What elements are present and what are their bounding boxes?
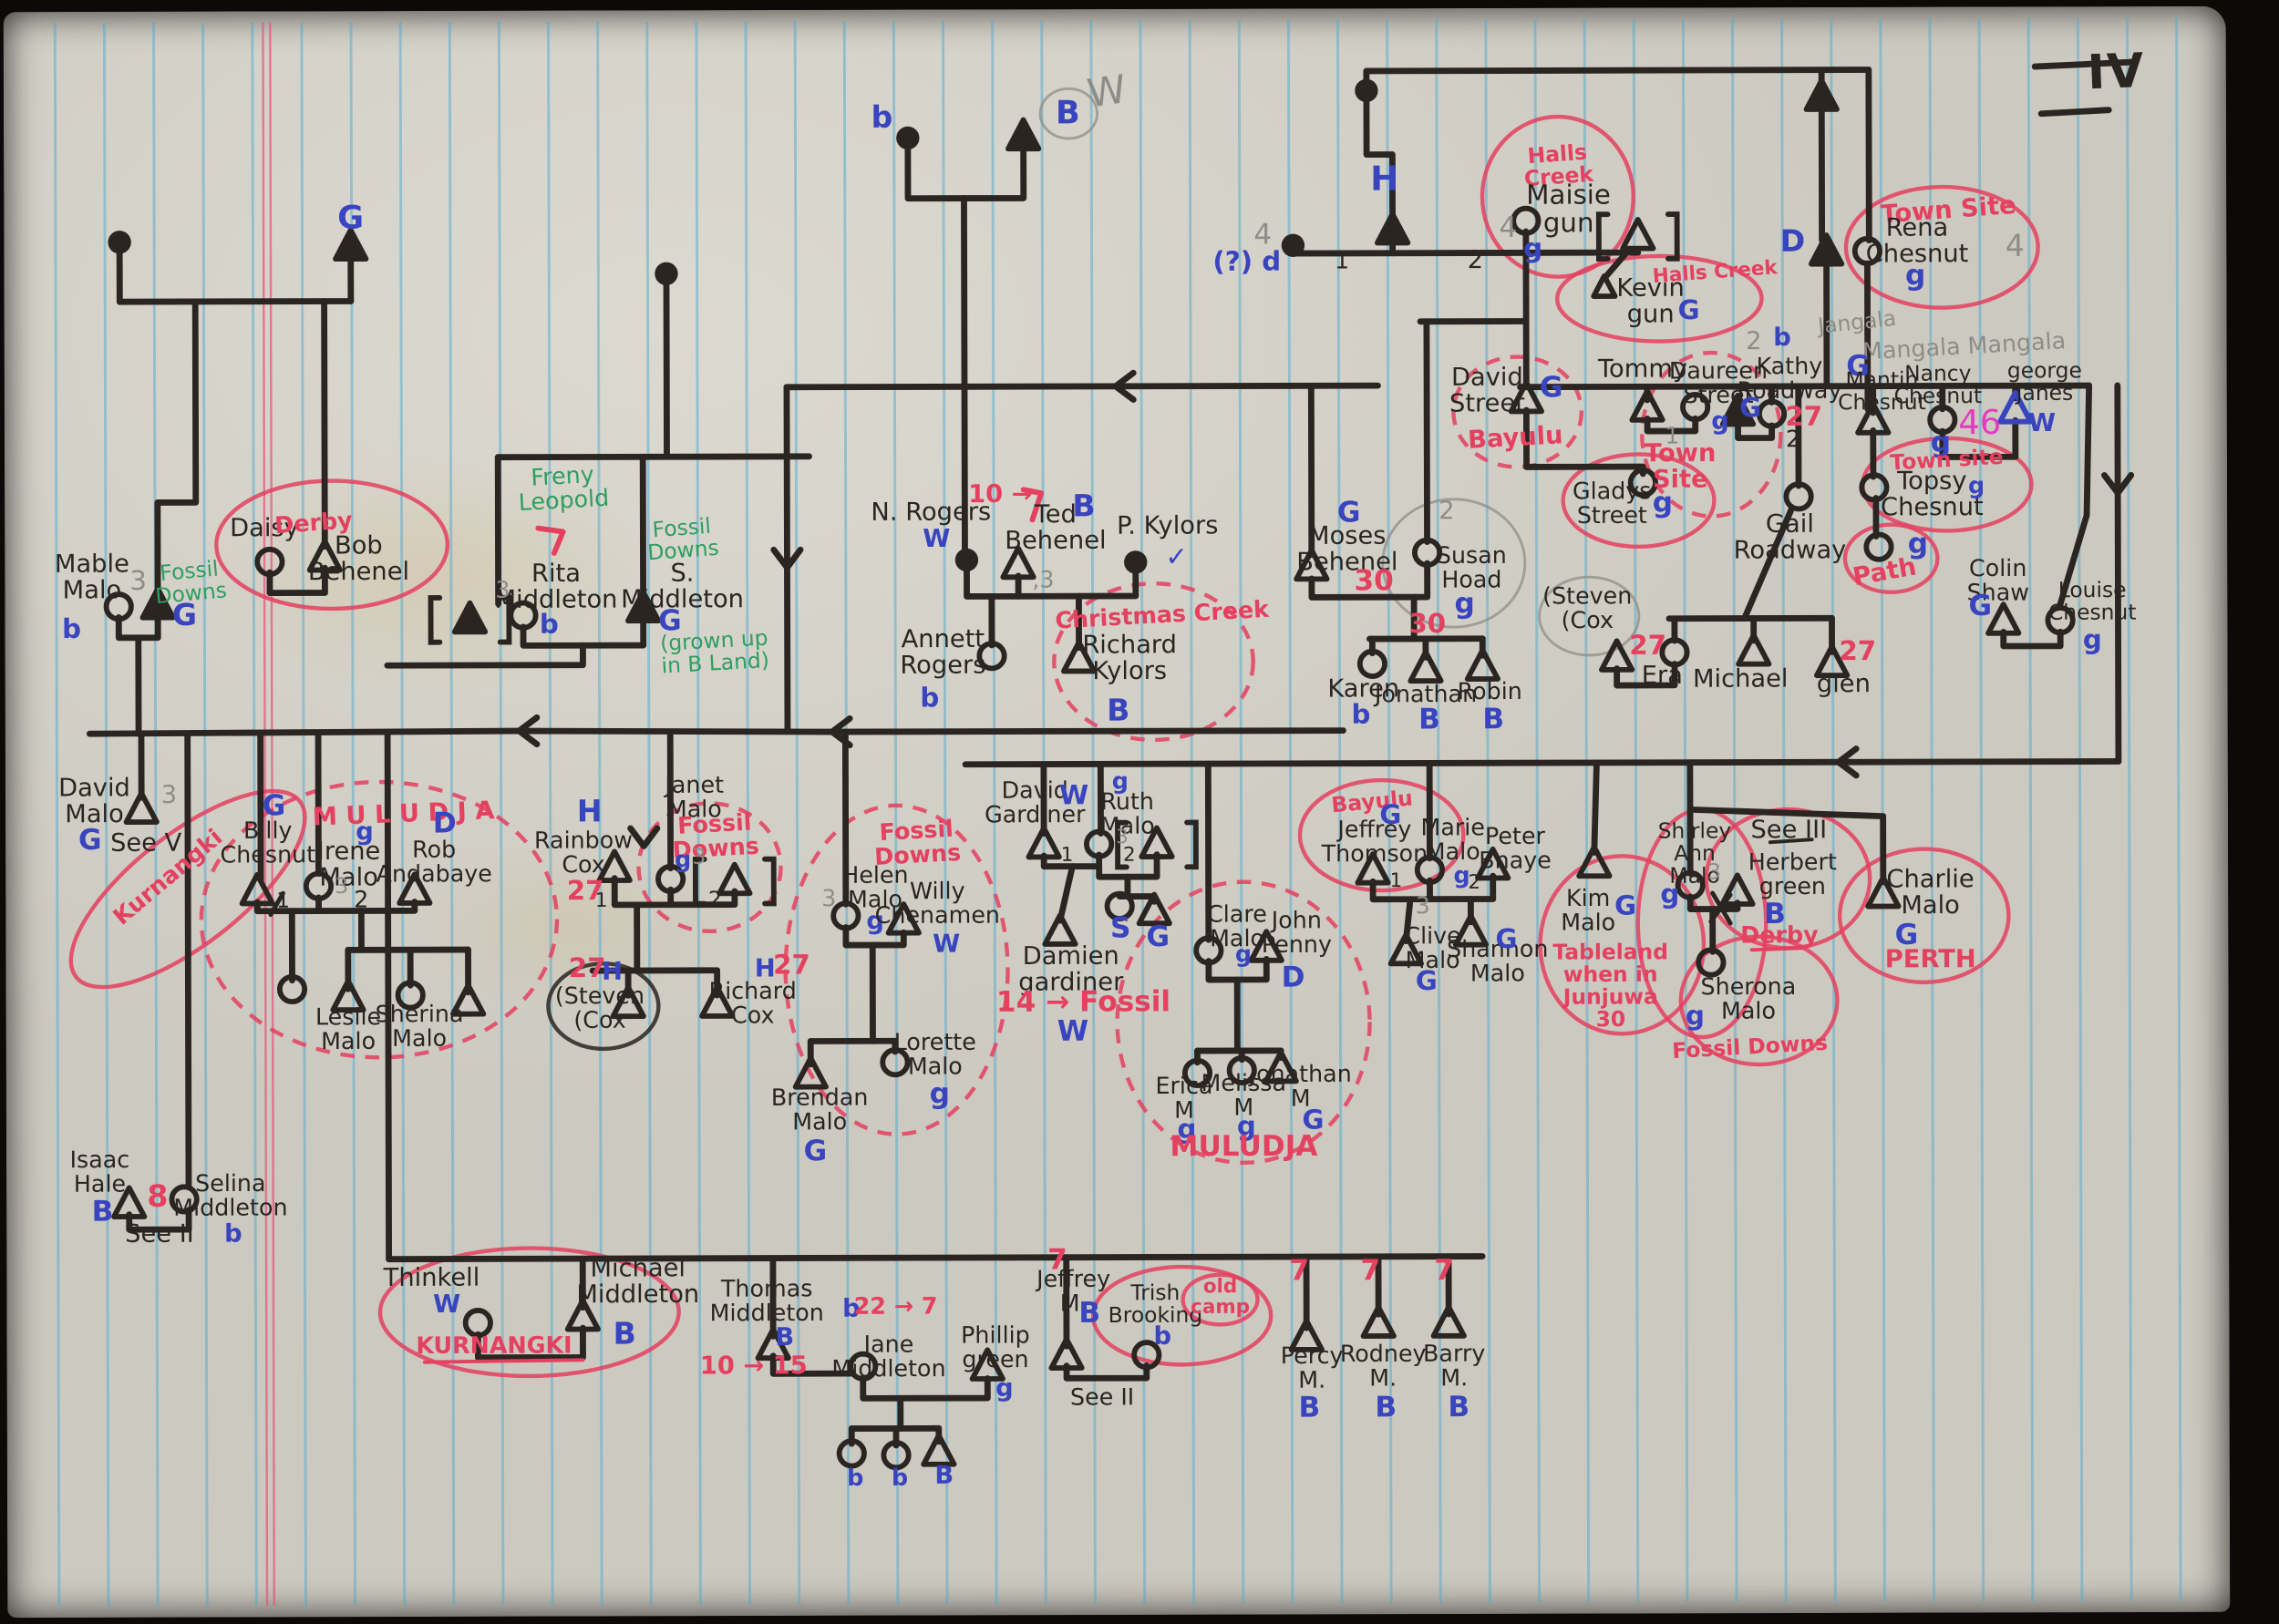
code: W <box>1059 779 1088 810</box>
code: G <box>804 1135 828 1167</box>
code: g <box>1686 1000 1705 1031</box>
name: glen <box>1817 670 1871 698</box>
pencil-note: 3 <box>129 565 147 596</box>
name: georgeJanes <box>2007 357 2082 406</box>
mark: 2 <box>1468 871 1480 894</box>
code: B <box>775 1323 794 1352</box>
code: W <box>1057 1015 1089 1048</box>
code: W <box>923 525 950 553</box>
code: B <box>934 1462 954 1490</box>
mark: 2 <box>1123 844 1136 867</box>
male-symbol <box>126 793 156 822</box>
code: G <box>337 200 364 237</box>
rule-line <box>2028 17 2033 1601</box>
code: b <box>1351 699 1370 730</box>
see-ref: See II <box>125 1220 194 1249</box>
notebook-paper: bBW4(?) dHHallsCreekMaisiegung421Kevingu… <box>4 6 2231 1618</box>
kinship-line <box>1427 322 1428 542</box>
place: PERTH <box>1885 945 1976 973</box>
code: G <box>1614 890 1636 921</box>
ancestor-dot-right-female-dot <box>1355 79 1377 102</box>
number: 8 <box>147 1178 168 1214</box>
mark: 2 <box>354 886 368 913</box>
place: oldcamp <box>1191 1275 1250 1319</box>
kinship-line <box>498 457 809 457</box>
code: G <box>1416 965 1438 996</box>
kinship-line <box>787 387 788 730</box>
code: B <box>1078 1297 1100 1330</box>
place: Path <box>1851 552 1919 591</box>
code: B <box>1482 703 1504 735</box>
kinship-line <box>1366 69 1869 81</box>
code: B <box>614 1316 636 1352</box>
place: FossilDowns <box>645 512 720 565</box>
see-ref: See II <box>1070 1382 1134 1410</box>
name: NancyChesnut <box>1893 360 1982 408</box>
code: W <box>2028 409 2056 437</box>
kinship-line <box>965 761 2119 764</box>
code: b <box>871 99 893 135</box>
code: g <box>1523 232 1542 263</box>
name: IsaacHale <box>70 1146 130 1197</box>
number: 27 <box>569 952 606 983</box>
red-oval-annotation <box>216 480 448 609</box>
pencil-note: 3 <box>1416 891 1430 919</box>
name: MichaelMiddleton <box>576 1254 699 1309</box>
code: b <box>892 1464 908 1491</box>
number: 30 <box>1408 608 1446 639</box>
p-kylors-female-dot <box>1124 550 1147 573</box>
kinship-line <box>89 729 1343 735</box>
rule-line <box>55 23 59 1607</box>
arrow-down-icon <box>631 828 657 847</box>
pencil-note: 3 <box>821 884 836 911</box>
name: LeslieMalo <box>315 1002 381 1054</box>
code: H <box>577 793 603 828</box>
code: G <box>172 597 197 632</box>
mark: 1 <box>276 888 290 913</box>
code: b <box>540 609 559 640</box>
kinship-line <box>389 1257 1482 1259</box>
see-ref: See III <box>1750 816 1827 844</box>
code: G <box>1495 923 1517 954</box>
male-symbol <box>1593 276 1614 296</box>
rule-line <box>549 22 553 1606</box>
code: B <box>1375 1391 1397 1424</box>
code: g <box>1235 940 1252 967</box>
code: b <box>62 613 81 644</box>
pencil-note: 2 <box>1439 497 1454 525</box>
code: G <box>1968 590 1992 622</box>
male-symbol <box>1434 1307 1464 1336</box>
code: b <box>847 1464 863 1491</box>
place: Derby <box>1740 920 1819 948</box>
pencil-note: 3 <box>335 873 348 899</box>
rule-line <box>2078 17 2082 1601</box>
code: G <box>78 824 102 857</box>
pencil-note: W <box>1085 67 1129 118</box>
kinship-line <box>1594 763 1597 853</box>
code: g <box>1968 471 1985 499</box>
name: PercyM. <box>1281 1341 1344 1393</box>
kinship-line <box>2118 385 2119 762</box>
male-symbol <box>1738 635 1769 664</box>
male-symbol <box>1377 214 1408 243</box>
name: MarieMalo <box>1420 813 1485 865</box>
male-symbol <box>1468 650 1498 679</box>
kinship-line <box>157 302 196 596</box>
name: DavidStreet <box>1449 364 1525 418</box>
number: 27 <box>1839 635 1876 666</box>
code: (?) d <box>1212 246 1281 277</box>
place: Christmas Creek <box>1055 595 1271 634</box>
bracket-mark <box>1668 214 1677 259</box>
place: Tablelandwhen inJunjuwa30 <box>1552 939 1668 1032</box>
place: M U L U D J A <box>312 797 495 831</box>
rule-line <box>2177 17 2181 1601</box>
female-b-female-dot <box>896 127 919 149</box>
rule-line <box>1091 20 1096 1604</box>
name: CharlieMalo <box>1886 865 1974 920</box>
number: 22 → 7 <box>854 1292 938 1320</box>
red-mark <box>1752 948 1804 950</box>
male-symbol <box>1811 235 1841 264</box>
place: MULUDJA <box>1170 1130 1317 1163</box>
name: RichardCox <box>709 977 797 1029</box>
n-rogers-female-dot <box>955 549 978 571</box>
male-symbol <box>1008 120 1038 149</box>
mark: 1 <box>595 889 608 912</box>
pencil-note: 3 <box>495 576 510 603</box>
code: B <box>1418 703 1440 735</box>
code: g <box>675 846 691 873</box>
ancestor-female-dot-2-female-dot <box>655 262 677 285</box>
male-symbol <box>1410 653 1440 682</box>
name: BillyChesnut <box>220 817 315 869</box>
kinship-line <box>2041 110 2109 114</box>
number: 27 <box>1629 630 1666 661</box>
code: ✓ <box>1165 541 1188 572</box>
code: g <box>1660 879 1679 910</box>
name: Robin <box>1458 677 1522 704</box>
name: IreneMalo <box>317 838 381 892</box>
number: 10 → <box>968 480 1032 509</box>
bracket-mark <box>431 598 440 642</box>
rule-line <box>253 23 257 1607</box>
code: g <box>995 1374 1014 1403</box>
name: JonathanM <box>1248 1060 1352 1112</box>
name: SheronaMalo <box>1700 972 1796 1024</box>
male-symbol <box>455 603 485 632</box>
name: Michael <box>1693 665 1789 694</box>
mark: 2 <box>1468 246 1483 274</box>
pencil-note: 3 <box>1707 858 1721 884</box>
code: G <box>1678 294 1700 325</box>
number: 27 <box>773 949 810 980</box>
pencil-note: 4 <box>2006 228 2025 263</box>
name: BarryM. <box>1423 1340 1485 1392</box>
genealogy-diagram: bBW4(?) dHHallsCreekMaisiegung421Kevingu… <box>4 6 2231 1618</box>
code: W <box>933 930 960 959</box>
place: Bayulu <box>1467 421 1563 455</box>
code: G <box>1739 392 1761 423</box>
name: MableMalo <box>55 550 129 605</box>
name: RichardKylors <box>1082 631 1177 685</box>
bracket-mark <box>765 859 774 904</box>
page-number: IV <box>2087 44 2147 100</box>
mark: 1 <box>1335 246 1349 273</box>
kinship-line <box>908 147 1024 199</box>
kinship-line <box>2059 385 2089 604</box>
name: Thinkell <box>383 1264 480 1292</box>
rule-line <box>1584 19 1589 1603</box>
name: Herbertgreen <box>1748 848 1837 899</box>
code: b <box>224 1220 242 1249</box>
scanned-genealogy-page: bBW4(?) dHHallsCreekMaisiegung421Kevingu… <box>0 0 2279 1624</box>
code: S <box>1110 911 1131 944</box>
name: RainbowCox <box>534 826 633 878</box>
pencil-note: 4 <box>1499 211 1517 244</box>
mark: 1 <box>1390 869 1403 892</box>
code: W <box>433 1290 460 1319</box>
name: LouiseChesnut <box>2048 577 2137 625</box>
name: KimMalo <box>1561 884 1615 936</box>
code: g <box>1905 259 1925 292</box>
code: B <box>92 1196 114 1228</box>
red-mark <box>425 1360 583 1362</box>
pencil-note: ,3 <box>1032 565 1054 592</box>
kinship-line <box>1060 867 1073 921</box>
code: g <box>2083 624 2102 655</box>
number: 46 <box>1958 403 2001 442</box>
mark: 2 <box>1786 425 1800 452</box>
kinship-line <box>188 734 189 1187</box>
number: 10 → 15 <box>700 1352 808 1380</box>
code: D <box>1282 961 1305 994</box>
code: B <box>1448 1391 1469 1424</box>
name: SusanHoad <box>1437 541 1507 593</box>
pencil-note: 3 <box>161 781 177 809</box>
code: b <box>920 682 939 713</box>
place: FrenyLeopold <box>516 459 609 516</box>
kinship-line <box>119 302 351 303</box>
code: H <box>1370 159 1398 199</box>
rule-line <box>1486 19 1490 1603</box>
name: (Steven(Cox <box>1542 581 1632 633</box>
code: b <box>1773 324 1791 352</box>
name: RobAndabaye <box>376 836 491 888</box>
code: B <box>1072 488 1095 523</box>
name: P. Kylors <box>1117 511 1218 540</box>
name: DavidMalo <box>58 774 130 828</box>
mark: 1 <box>1061 844 1074 867</box>
code: B <box>1107 693 1129 728</box>
kinship-line <box>964 199 964 550</box>
name: JohnPenny <box>1262 906 1332 958</box>
rule-line <box>1979 18 1984 1602</box>
number: 7 <box>1360 1254 1380 1287</box>
number: 7 <box>1434 1254 1454 1287</box>
name: ThomasMiddleton <box>710 1274 824 1326</box>
rule-line <box>499 22 503 1606</box>
rule-line <box>2127 17 2131 1601</box>
code: g <box>1711 407 1729 436</box>
code: b <box>1153 1322 1171 1351</box>
name: PeterBnaye <box>1479 822 1552 874</box>
name: Era <box>1642 662 1683 690</box>
rule-line <box>647 21 652 1605</box>
name: S.Middleton <box>621 560 744 614</box>
number: 30 <box>1354 564 1394 597</box>
male-symbol <box>923 1435 954 1465</box>
code: B <box>1056 94 1080 131</box>
path-daughter-female-symbol <box>1866 534 1891 559</box>
name: AnnettRogers <box>900 625 985 680</box>
wife1-dot-female-dot <box>1282 234 1304 257</box>
code: g <box>1653 487 1673 519</box>
name: Phillipgreen <box>961 1321 1030 1372</box>
code: g <box>930 1077 950 1110</box>
kinship-line <box>787 385 1378 387</box>
ancestor-female-dot-female-dot <box>108 231 130 253</box>
name: (Steven(Cox <box>555 982 645 1033</box>
pencil-note: 3 <box>692 844 706 869</box>
note: (grown upin B Land) <box>659 625 769 679</box>
name: GailRoadway <box>1733 510 1846 565</box>
name: BrendanMalo <box>771 1084 869 1136</box>
code: B <box>1298 1392 1320 1424</box>
code: G <box>1540 371 1563 404</box>
name: JeffreyThomson <box>1321 815 1428 867</box>
code: g <box>1454 588 1474 621</box>
code: G <box>1146 920 1170 953</box>
name: RodneyM. <box>1340 1340 1427 1392</box>
name: GladysStreet <box>1573 477 1652 529</box>
number: 14 → Fossil <box>996 985 1170 1019</box>
code: D <box>1780 223 1806 259</box>
place: KURNANGKI <box>416 1331 572 1359</box>
number: 7 <box>1289 1254 1309 1287</box>
male-symbol <box>1045 915 1075 944</box>
see-ref: See V <box>110 829 182 858</box>
mark: 2 <box>708 887 722 912</box>
